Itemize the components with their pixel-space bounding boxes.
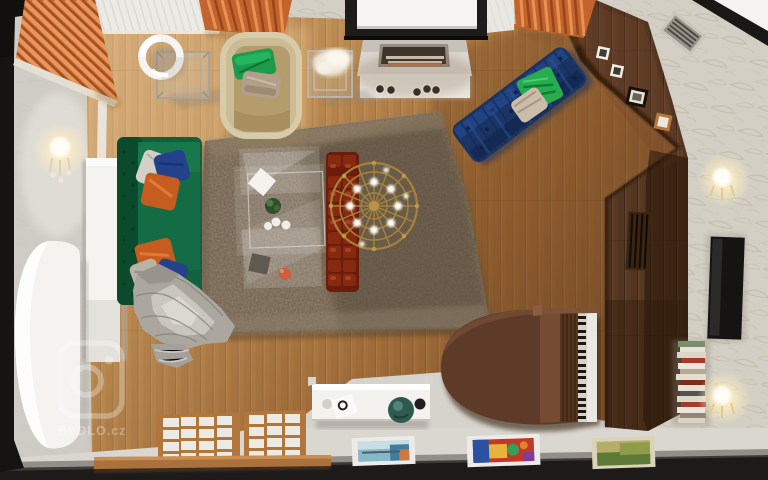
svg-text:BYDLO.cz: BYDLO.cz — [58, 424, 126, 438]
